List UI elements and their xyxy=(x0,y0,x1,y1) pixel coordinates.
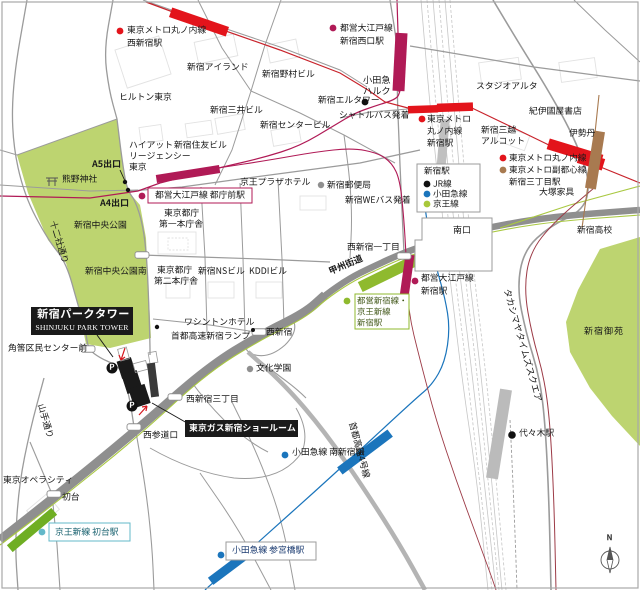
svg-text:SHINJUKU PARK TOWER: SHINJUKU PARK TOWER xyxy=(35,323,129,332)
